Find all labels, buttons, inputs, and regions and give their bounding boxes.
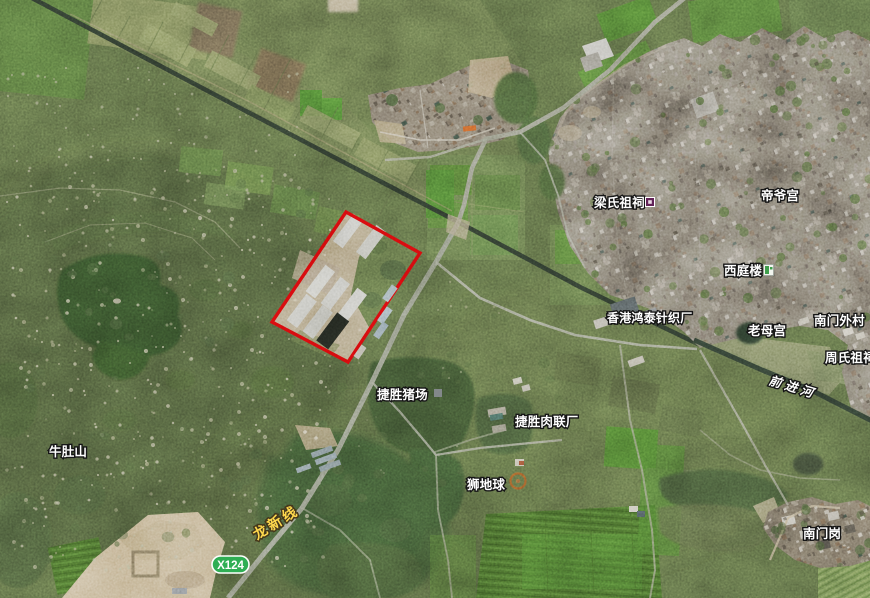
svg-text:X124: X124 [217, 560, 244, 572]
svg-text:帝爷宫: 帝爷宫 [761, 188, 799, 203]
svg-text:捷胜猪场: 捷胜猪场 [377, 387, 428, 402]
svg-text:香港鸿泰针织厂: 香港鸿泰针织厂 [606, 310, 692, 325]
svg-text:牛肚山: 牛肚山 [49, 444, 87, 459]
svg-text:南门岗: 南门岗 [803, 526, 841, 541]
svg-text:周氏祖祠: 周氏祖祠 [825, 350, 870, 365]
svg-text:狮地球: 狮地球 [466, 477, 505, 492]
svg-text:梁氏祖祠: 梁氏祖祠 [593, 195, 645, 210]
svg-text:捷胜肉联厂: 捷胜肉联厂 [515, 414, 579, 429]
svg-text:老母宫: 老母宫 [747, 323, 786, 338]
svg-text:南门外村: 南门外村 [814, 313, 865, 328]
svg-text:西庭楼: 西庭楼 [724, 263, 762, 278]
